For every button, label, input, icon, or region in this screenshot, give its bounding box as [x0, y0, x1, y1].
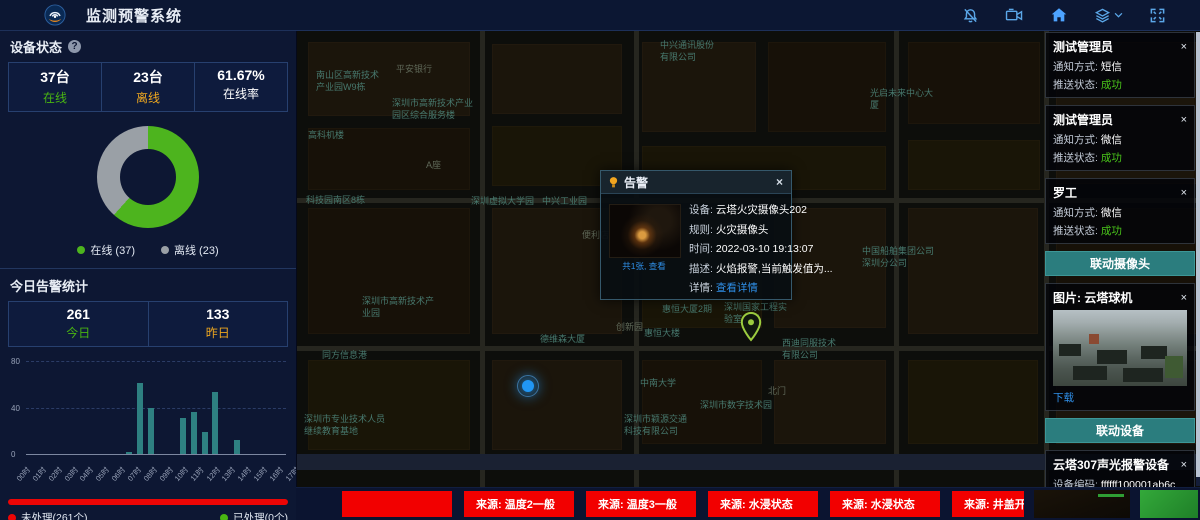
alert-source-item[interactable]: 来源: 温度2一般 — [464, 491, 574, 517]
bar-slot — [264, 361, 275, 454]
close-icon[interactable]: × — [1181, 41, 1187, 53]
stat-box: 133昨日 — [148, 302, 288, 346]
notification-card: 罗工×通知方式:微信推送状态:成功 — [1045, 178, 1195, 244]
info-label: 通知方式: — [1053, 61, 1098, 73]
legend-item: 在线 (37) — [77, 242, 135, 258]
info-label: 通知方式: — [1053, 134, 1098, 146]
map-label: 惠恒大厦2期 — [662, 304, 712, 316]
close-icon[interactable]: × — [1181, 187, 1187, 199]
bar-slot — [80, 361, 91, 454]
legend-dot — [161, 246, 169, 254]
linked-device-title: 云塔307声光报警设备 — [1053, 456, 1169, 473]
alert-source-item[interactable]: 来源: 井盖开盖告警 — [952, 491, 1024, 517]
bar-slot — [91, 361, 102, 454]
hourly-alarm-bar-chart: 80 40 0 00时01时02时03时04时05时06时07时08时09时10… — [8, 353, 288, 483]
download-link[interactable]: 下载 — [1053, 390, 1074, 405]
close-icon[interactable]: × — [1181, 114, 1187, 126]
alert-detail-row: 详情:查看详情 — [689, 280, 785, 295]
map-label: 深圳虚拟大学园 — [471, 196, 534, 208]
bar-slot — [113, 361, 124, 454]
handled-label: 已处理(0个) — [220, 510, 288, 520]
stat-value: 61.67% — [195, 67, 287, 83]
view-details-link[interactable]: 查看详情 — [716, 282, 758, 294]
info-value: 成功 — [1101, 152, 1122, 164]
camera-card-title: 图片: 云塔球机 — [1053, 289, 1132, 306]
card-head: 测试管理员× — [1053, 38, 1187, 55]
close-icon[interactable]: × — [776, 175, 783, 189]
info-value: 微信 — [1101, 134, 1122, 146]
linked-device-card: 云塔307声光报警设备×设备编码:ffffff100001ab6c调用服务:报警… — [1045, 450, 1195, 488]
alert-popup: 告警 × 共1张, 查看 设备:云塔火灾摄像头202规则:火灾摄像头时间:202… — [600, 170, 792, 300]
alert-source-item[interactable]: 来源: 温度3一般 — [586, 491, 696, 517]
donut-legend: 在线 (37)离线 (23) — [0, 242, 296, 258]
legend-label: 在线 (37) — [90, 242, 135, 258]
alert-location-pin-icon[interactable] — [740, 312, 762, 347]
bar-slot — [102, 361, 113, 454]
device-location-dot[interactable] — [522, 380, 534, 392]
card-head: 罗工× — [1053, 184, 1187, 201]
map-label: 中南大学 — [640, 378, 676, 390]
legend-label: 离线 (23) — [174, 242, 219, 258]
thumbnail-caption-link[interactable]: 共1张, 查看 — [607, 260, 681, 272]
alert-detail-row: 设备:云塔火灾摄像头202 — [689, 202, 785, 217]
bar-slot — [275, 361, 286, 454]
bar — [234, 440, 240, 454]
help-icon[interactable]: ? — [68, 40, 81, 53]
alarm-progress: 未处理(261个) 已处理(0个) — [8, 499, 288, 520]
info-row: 推送状态:成功 — [1053, 150, 1187, 165]
y-tick: 0 — [11, 450, 15, 459]
linked-cameras-header: 联动摄像头 — [1045, 251, 1195, 276]
alert-thumbnail-image[interactable] — [1140, 490, 1198, 518]
map-label: 中兴工业园 — [542, 196, 587, 208]
stat-label: 离线 — [102, 89, 194, 106]
info-label: 推送状态: — [1053, 225, 1098, 237]
notification-title: 测试管理员 — [1053, 38, 1113, 55]
x-axis-labels: 00时01时02时03时04时05时06时07时08时09时10时11时12时1… — [22, 459, 286, 485]
alert-detail-value: 火焰报警,当前触发值为... — [716, 263, 833, 275]
bar — [148, 408, 154, 455]
bar-slot — [210, 361, 221, 454]
alert-detail-value: 火灾摄像头 — [716, 224, 769, 236]
alert-detail-label: 描述: — [689, 263, 713, 275]
fire-snapshot-image[interactable] — [609, 204, 681, 258]
bar-slot — [134, 361, 145, 454]
stat-box: 23台离线 — [101, 63, 194, 111]
bar — [212, 392, 218, 454]
info-row: 推送状态:成功 — [1053, 77, 1187, 92]
legend-item: 离线 (23) — [161, 242, 219, 258]
video-camera-icon[interactable] — [1005, 8, 1024, 23]
bar-slot — [145, 361, 156, 454]
unhandled-progress-bar — [8, 499, 288, 505]
left-stats-panel: 设备状态 ? 37台在线23台离线61.67%在线率 在线 (37)离线 (23… — [0, 30, 297, 520]
alert-detail-value: 云塔火灾摄像头202 — [716, 204, 807, 216]
alert-detail-row: 时间:2022-03-10 19:13:07 — [689, 241, 785, 256]
stat-box: 261今日 — [9, 302, 148, 346]
map-label: 创新园 — [616, 322, 643, 334]
bar-plot-area — [26, 361, 286, 455]
stat-label: 在线 — [9, 89, 101, 106]
y-tick: 80 — [11, 357, 20, 366]
alert-popup-title: 告警 — [624, 174, 648, 191]
close-icon[interactable]: × — [1181, 292, 1187, 304]
map-label: 平安银行 — [396, 64, 432, 76]
bar-slot — [199, 361, 210, 454]
bar-slot — [48, 361, 59, 454]
map-label: 高科机楼 — [308, 130, 344, 142]
unhandled-label: 未处理(261个) — [8, 510, 88, 520]
stat-box: 61.67%在线率 — [194, 63, 287, 111]
bar-slot — [188, 361, 199, 454]
info-value: 成功 — [1101, 225, 1122, 237]
top-header: 监测预警系统 — [0, 0, 1200, 31]
alert-detail-value: 2022-03-10 19:13:07 — [716, 243, 814, 255]
page-title: 监测预警系统 — [86, 5, 182, 26]
info-label: 推送状态: — [1053, 152, 1098, 164]
unhandled-dot — [8, 514, 16, 520]
info-row: 通知方式:微信 — [1053, 205, 1187, 220]
today-alarms-section: 今日告警统计 261今日133昨日 80 40 0 00时01时02时03时04… — [0, 268, 296, 520]
map-label: 南山区高新技术产业园W9栋 — [316, 70, 382, 93]
stat-label: 今日 — [9, 324, 148, 341]
stat-value: 261 — [9, 306, 148, 322]
bar — [180, 418, 186, 454]
bar — [191, 412, 197, 454]
home-icon[interactable] — [1050, 6, 1068, 24]
map-label: 惠恒大楼 — [644, 328, 680, 340]
device-status-title: 设备状态 — [10, 37, 62, 56]
map-label: 深圳市专业技术人员继续教育基地 — [304, 414, 388, 437]
bar-slot — [58, 361, 69, 454]
bar — [126, 452, 132, 454]
map-label: 北门 — [768, 386, 786, 398]
notification-title: 罗工 — [1053, 184, 1077, 201]
camera-snapshot-card: 图片: 云塔球机 × 下载 — [1045, 283, 1195, 411]
map-label: 光启未来中心大厦 — [870, 88, 940, 111]
map-label: 深圳市颖源交通科技有限公司 — [624, 414, 690, 437]
stat-label: 昨日 — [149, 324, 288, 341]
bar-slot — [123, 361, 134, 454]
info-label: 通知方式: — [1053, 207, 1098, 219]
stat-label: 在线率 — [195, 85, 287, 102]
header-icon-bar — [962, 6, 1166, 24]
bar-slot — [69, 361, 80, 454]
handled-dot — [220, 514, 228, 520]
notification-title: 测试管理员 — [1053, 111, 1113, 128]
map-label: A座 — [426, 160, 441, 172]
notification-card: 测试管理员×通知方式:短信推送状态:成功 — [1045, 32, 1195, 98]
bar — [202, 432, 208, 454]
alert-detail-label: 规则: — [689, 224, 713, 236]
bar-slot — [243, 361, 254, 454]
map-scrollbar — [1196, 32, 1200, 486]
alert-detail-row: 描述:火焰报警,当前触发值为... — [689, 261, 785, 276]
map-label: 西迪同服技术有限公司 — [782, 338, 838, 361]
info-value: 微信 — [1101, 207, 1122, 219]
info-label: 推送状态: — [1053, 79, 1098, 91]
map-label: 同方信息港 — [322, 350, 367, 362]
bulb-icon — [609, 176, 618, 189]
bar-slot — [178, 361, 189, 454]
info-row: 通知方式:短信 — [1053, 59, 1187, 74]
device-status-section: 设备状态 ? 37台在线23台离线61.67%在线率 在线 (37)离线 (23… — [0, 30, 296, 258]
scrollbar-thumb[interactable] — [1196, 32, 1200, 477]
fullscreen-icon[interactable] — [1149, 7, 1166, 24]
alert-ticker-bar: 来源: 温度2一般来源: 温度3一般来源: 水浸状态来源: 水浸状态来源: 井盖… — [296, 487, 1200, 520]
stat-value: 133 — [149, 306, 288, 322]
alert-detail-label: 设备: — [689, 204, 713, 216]
ticker-thumbnails — [1034, 490, 1198, 518]
close-icon[interactable]: × — [1181, 459, 1187, 471]
notification-bell-off-icon[interactable] — [962, 7, 979, 24]
stat-box: 37台在线 — [9, 63, 101, 111]
alert-detail-label: 详情: — [689, 282, 713, 294]
notification-card: 测试管理员×通知方式:微信推送状态:成功 — [1045, 105, 1195, 171]
map-label: 中兴通讯股份有限公司 — [660, 40, 722, 63]
device-status-donut-chart — [97, 126, 199, 228]
right-notifications-panel: 测试管理员×通知方式:短信推送状态:成功测试管理员×通知方式:微信推送状态:成功… — [1045, 32, 1195, 488]
y-tick: 40 — [11, 404, 20, 413]
map-label: 深圳市高新技术产业园 — [362, 296, 434, 319]
alert-thumbnail-image[interactable] — [1034, 490, 1130, 518]
chevron-down-icon — [1114, 12, 1123, 18]
alert-source-item[interactable] — [342, 491, 452, 517]
stat-value: 37台 — [9, 67, 101, 87]
map-label: 深圳市高新技术产业园区综合服务楼 — [392, 98, 476, 121]
bar-slot — [232, 361, 243, 454]
bar-slot — [26, 361, 37, 454]
alert-source-item[interactable]: 来源: 水浸状态 — [830, 491, 940, 517]
device-status-stats-row: 37台在线23台离线61.67%在线率 — [8, 62, 288, 112]
legend-dot — [77, 246, 85, 254]
info-row: 推送状态:成功 — [1053, 223, 1187, 238]
bar-slot — [156, 361, 167, 454]
camera-snapshot-image — [1053, 310, 1187, 386]
map-label: 中国船舶集团公司深圳分公司 — [862, 246, 934, 269]
bar-slot — [221, 361, 232, 454]
info-value: 短信 — [1101, 61, 1122, 73]
map-label: 科技园南区8栋 — [306, 195, 365, 207]
map-label: 深圳市数字技术园 — [700, 400, 772, 412]
linked-devices-header: 联动设备 — [1045, 418, 1195, 443]
bar-slot — [253, 361, 264, 454]
bar-slot — [167, 361, 178, 454]
info-row: 通知方式:微信 — [1053, 132, 1187, 147]
stat-value: 23台 — [102, 67, 194, 87]
bar — [137, 383, 143, 454]
today-alarms-stats-row: 261今日133昨日 — [8, 301, 288, 347]
alert-detail-label: 时间: — [689, 243, 713, 255]
today-alarms-title: 今日告警统计 — [10, 276, 88, 295]
app-logo-icon — [44, 4, 66, 26]
card-head: 云塔307声光报警设备× — [1053, 456, 1187, 473]
card-head: 测试管理员× — [1053, 111, 1187, 128]
info-value: 成功 — [1101, 79, 1122, 91]
alert-detail-row: 规则:火灾摄像头 — [689, 222, 785, 237]
alert-source-item[interactable]: 来源: 水浸状态 — [708, 491, 818, 517]
map-label: 德维森大厦 — [540, 334, 585, 346]
bar-slot — [37, 361, 48, 454]
layers-icon[interactable] — [1094, 7, 1123, 24]
